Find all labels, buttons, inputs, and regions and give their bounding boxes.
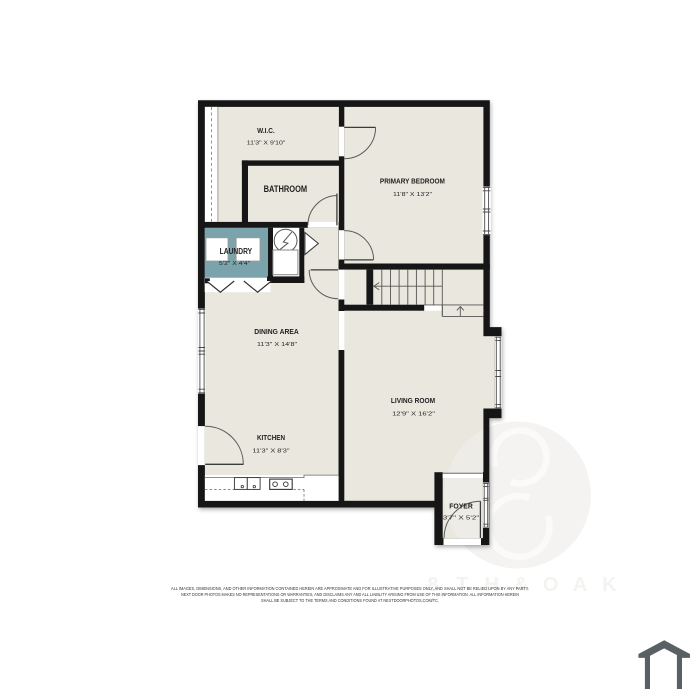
svg-text:NEXT DOOR PHOTOS MAKES NO REPR: NEXT DOOR PHOTOS MAKES NO REPRESENTATION… xyxy=(181,592,519,598)
svg-text:FOYER: FOYER xyxy=(449,504,473,511)
svg-text:ALL IMAGES, DIMENSIONS, AND OT: ALL IMAGES, DIMENSIONS, AND OTHER INFORM… xyxy=(171,586,529,592)
svg-text:11'8" X 13'2": 11'8" X 13'2" xyxy=(393,192,432,198)
svg-text:3'7" X 5'2": 3'7" X 5'2" xyxy=(443,515,480,521)
svg-text:11'3" X 8'3": 11'3" X 8'3" xyxy=(253,449,290,455)
svg-text:LIVING ROOM: LIVING ROOM xyxy=(391,398,435,405)
svg-text:W.I.C.: W.I.C. xyxy=(257,128,275,135)
svg-text:5'2" X 4'4": 5'2" X 4'4" xyxy=(219,261,250,267)
svg-text:12'9" X 16'2": 12'9" X 16'2" xyxy=(392,411,435,417)
svg-text:PRIMARY BEDROOM: PRIMARY BEDROOM xyxy=(380,179,445,186)
svg-text:LAUNDRY: LAUNDRY xyxy=(220,246,253,256)
svg-text:BATHROOM: BATHROOM xyxy=(264,184,308,195)
svg-text:11'3" X 9'10": 11'3" X 9'10" xyxy=(247,141,286,147)
svg-text:DINING AREA: DINING AREA xyxy=(254,329,299,336)
svg-text:KITCHEN: KITCHEN xyxy=(257,435,285,442)
svg-text:11'3" X 14'8": 11'3" X 14'8" xyxy=(257,342,297,348)
svg-text:SHALL BE SUBJECT TO THE TERMS: SHALL BE SUBJECT TO THE TERMS AND CONDIT… xyxy=(261,598,439,604)
